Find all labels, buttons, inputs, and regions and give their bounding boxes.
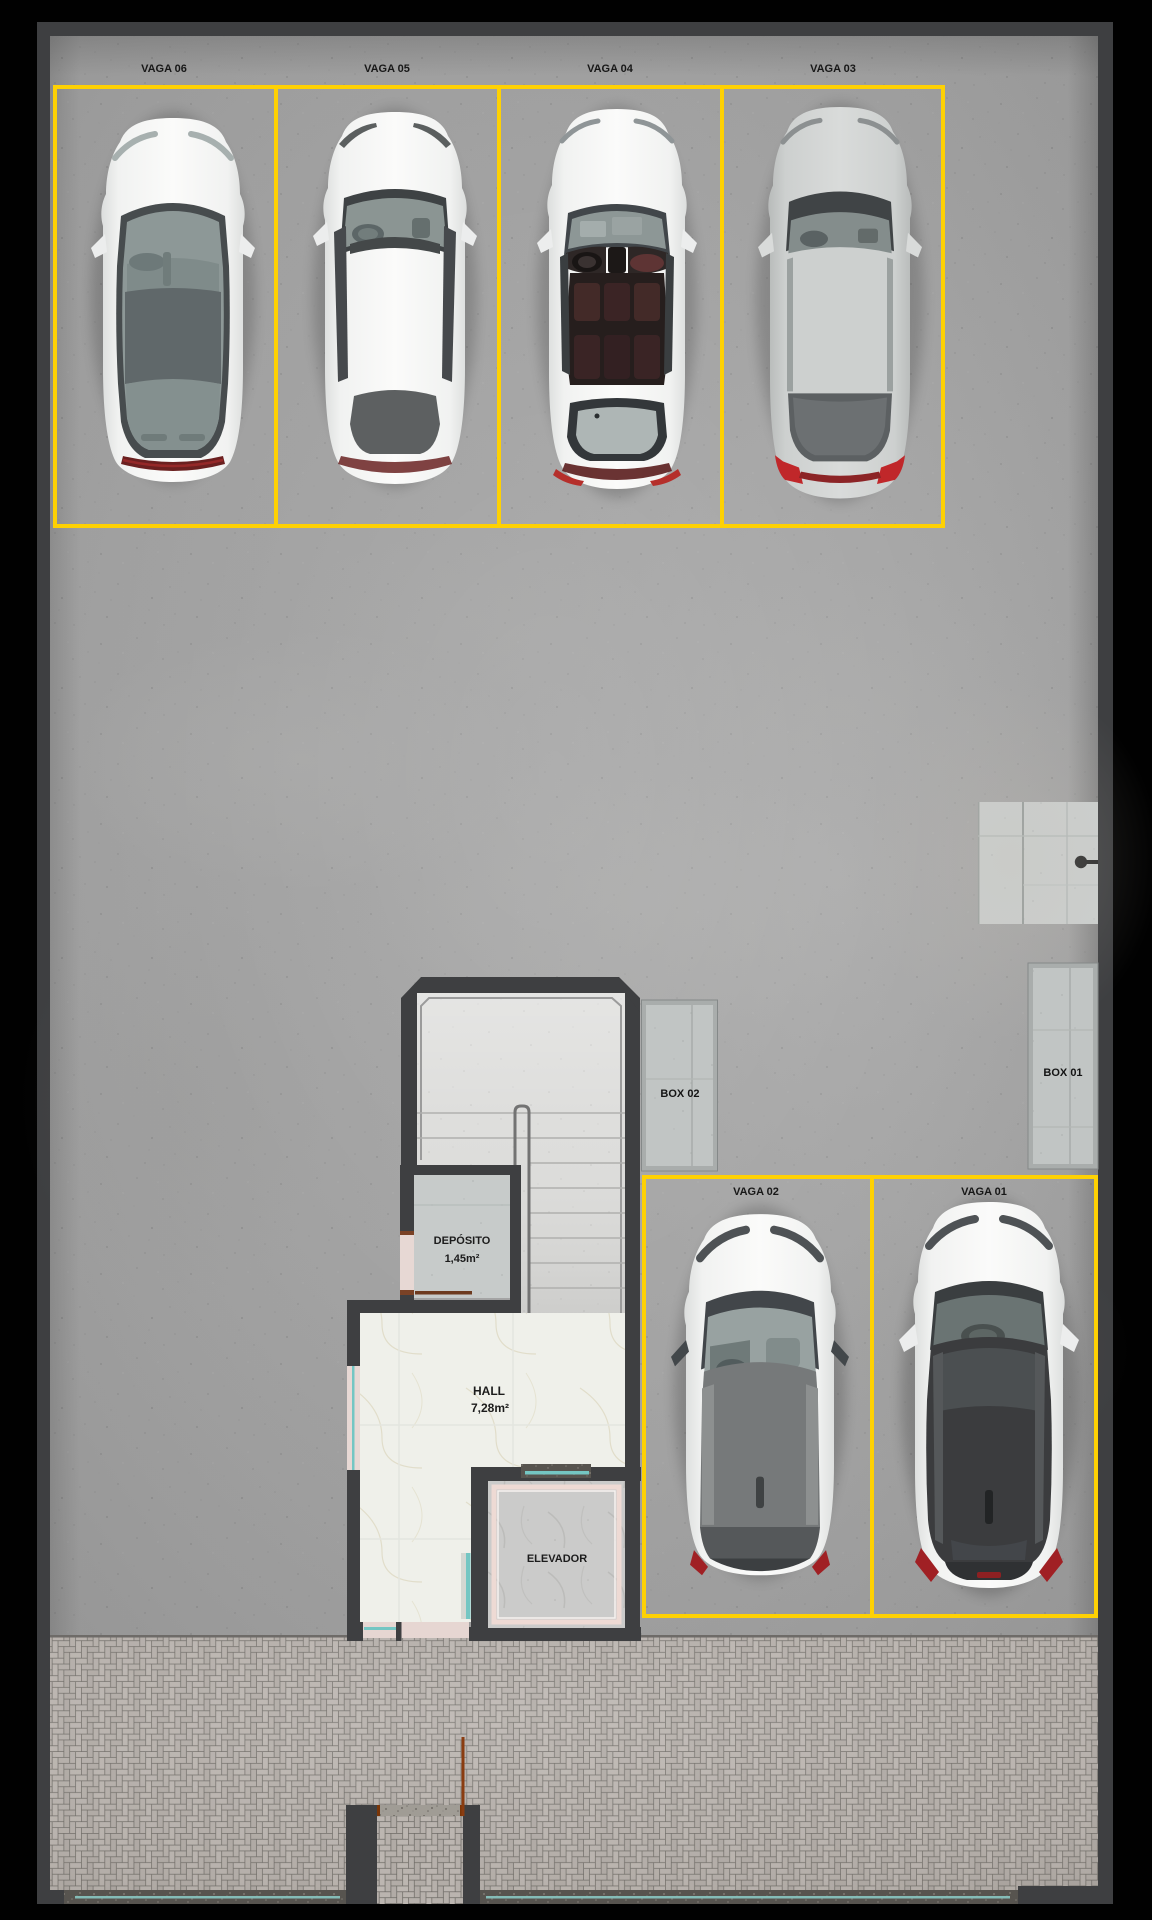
svg-text:VAGA 06: VAGA 06 (141, 63, 187, 75)
svg-text:VAGA 04: VAGA 04 (587, 63, 634, 75)
svg-text:ELEVADOR: ELEVADOR (527, 1553, 587, 1565)
svg-text:VAGA 03: VAGA 03 (810, 63, 856, 75)
svg-text:DEPÓSITO: DEPÓSITO (434, 1234, 491, 1247)
svg-text:VAGA 05: VAGA 05 (364, 63, 410, 75)
svg-text:7,28m²: 7,28m² (471, 1401, 509, 1415)
svg-text:VAGA 01: VAGA 01 (961, 1186, 1007, 1198)
svg-text:BOX 01: BOX 01 (1043, 1067, 1082, 1079)
svg-text:1,45m²: 1,45m² (445, 1253, 480, 1265)
svg-text:HALL: HALL (473, 1384, 505, 1398)
svg-text:VAGA 02: VAGA 02 (733, 1186, 779, 1198)
svg-text:BOX 02: BOX 02 (660, 1088, 699, 1100)
